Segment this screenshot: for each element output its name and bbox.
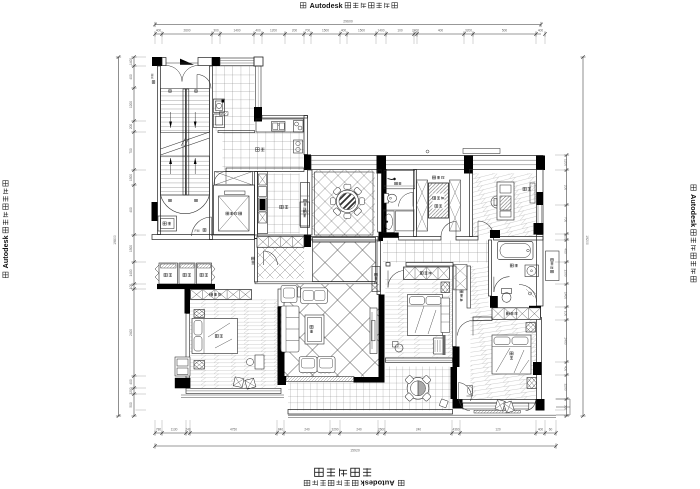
svg-text:200: 200 [292,29,298,33]
svg-text:1500: 1500 [564,233,568,240]
svg-text:3200: 3200 [129,387,133,394]
svg-text:1500: 1500 [129,245,133,252]
svg-text:1500: 1500 [564,269,568,276]
svg-text:400: 400 [156,29,162,33]
svg-text:15920: 15920 [350,449,360,453]
svg-text:200: 200 [129,124,133,130]
svg-text:60: 60 [549,428,553,432]
svg-text:1200: 1200 [129,101,133,108]
svg-text:400: 400 [255,29,261,33]
svg-text:1400: 1400 [129,58,133,65]
svg-text:120: 120 [495,428,501,432]
svg-text:Autodesk: Autodesk [360,478,395,487]
svg-text:500: 500 [564,405,568,411]
svg-text:1400: 1400 [129,269,133,276]
svg-text:240: 240 [416,428,422,432]
svg-text:100: 100 [397,29,403,33]
svg-text:400: 400 [564,366,568,372]
svg-text:2600: 2600 [183,29,190,33]
svg-text:4750: 4750 [230,428,237,432]
svg-text:Autodesk: Autodesk [689,194,697,227]
svg-text:1400: 1400 [233,29,240,33]
svg-text:3200: 3200 [564,383,568,390]
svg-text:500: 500 [502,29,508,33]
svg-text:2400: 2400 [564,337,568,344]
svg-text:400: 400 [341,29,347,33]
svg-text:780: 780 [156,428,162,432]
svg-text:29600: 29600 [343,20,353,24]
svg-text:700: 700 [129,148,133,154]
svg-text:400: 400 [538,29,544,33]
svg-text:400: 400 [538,428,544,432]
svg-text:1400: 1400 [564,292,568,299]
svg-text:1500: 1500 [358,29,365,33]
svg-text:400: 400 [564,248,568,254]
svg-text:19200: 19200 [585,235,589,245]
svg-text:1200: 1200 [270,29,277,33]
svg-text:Autodesk: Autodesk [310,2,343,10]
svg-text:Autodesk: Autodesk [2,235,10,268]
svg-text:200: 200 [564,185,568,191]
svg-text:19800: 19800 [113,235,117,245]
svg-text:2400: 2400 [129,329,133,336]
svg-text:400: 400 [129,207,133,213]
svg-text:240: 240 [356,428,362,432]
svg-text:100: 100 [129,284,133,290]
svg-text:500: 500 [129,402,133,408]
svg-text:400: 400 [129,74,133,80]
svg-text:400: 400 [129,379,133,385]
svg-text:400: 400 [438,29,444,33]
svg-text:1400: 1400 [377,29,384,33]
svg-text:3200: 3200 [465,29,472,33]
svg-text:FM: FM [151,73,155,78]
svg-text:FM: FM [195,229,200,233]
svg-text:1130: 1130 [171,428,178,432]
svg-text:4360: 4360 [452,428,459,432]
svg-text:240: 240 [304,428,310,432]
svg-text:300: 300 [213,29,219,33]
svg-text:2400: 2400 [412,29,419,33]
svg-text:1500: 1500 [322,29,329,33]
svg-text:100: 100 [564,311,568,317]
svg-text:1500: 1500 [129,174,133,181]
svg-text:3290: 3290 [331,428,338,432]
svg-text:700: 700 [305,29,311,33]
svg-text:840: 840 [278,428,284,432]
svg-text:700: 700 [564,217,568,223]
svg-text:2600: 2600 [378,428,385,432]
svg-text:1200: 1200 [564,159,568,166]
